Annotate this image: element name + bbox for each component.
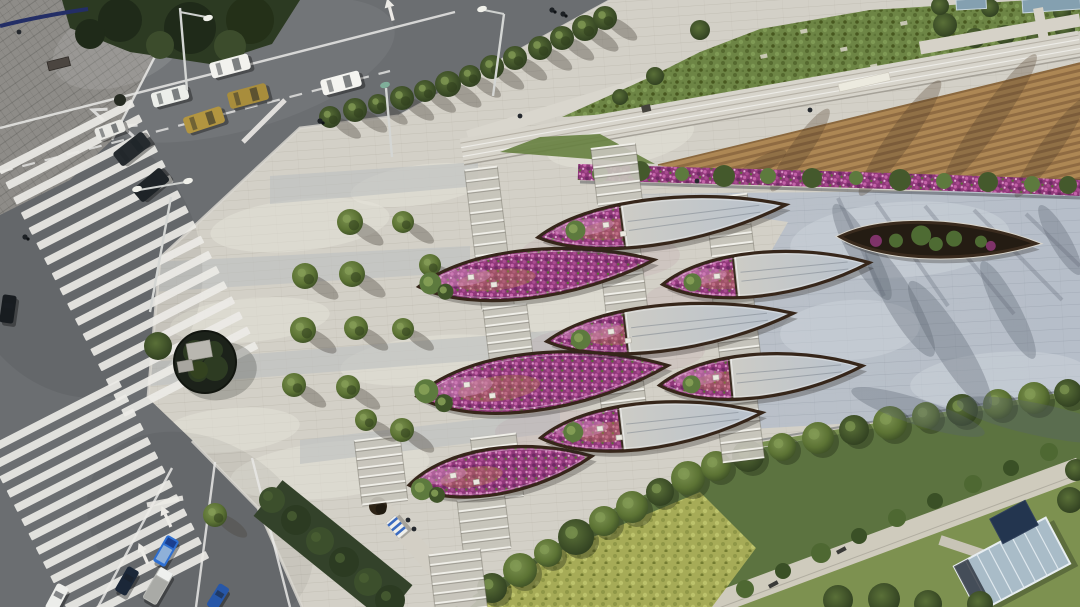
planter-box — [608, 329, 615, 335]
shrub — [888, 509, 906, 527]
aerial-photo — [0, 0, 1080, 607]
tree-clump — [401, 428, 411, 438]
hedge-tree — [306, 527, 334, 555]
tree-clump — [377, 103, 385, 111]
tree-clump — [514, 56, 524, 66]
step-flight — [457, 495, 511, 554]
tree-clump — [349, 220, 359, 230]
tree-clump — [402, 220, 411, 229]
hedge-highlight — [381, 591, 391, 601]
tree-highlight — [298, 269, 306, 277]
shrub — [1003, 460, 1019, 476]
tree-clump — [354, 108, 364, 118]
tree-highlight — [208, 508, 216, 516]
shrub — [736, 580, 754, 598]
tree-highlight — [360, 414, 367, 421]
tree-clump — [365, 418, 374, 427]
step-flight — [429, 549, 488, 607]
planter-box — [464, 382, 471, 388]
hedge-highlight — [287, 511, 297, 521]
tree-highlight — [1024, 388, 1035, 399]
pavilion-side-tree — [144, 332, 172, 360]
hedge-highlight — [359, 573, 369, 583]
tree-clump — [469, 74, 478, 83]
person — [412, 527, 417, 532]
kiosk-roof — [177, 359, 194, 372]
planter-box — [714, 273, 720, 279]
tree-clump — [401, 96, 411, 106]
planter-box — [620, 231, 627, 237]
shrub — [964, 475, 982, 493]
tree-clump — [424, 89, 433, 98]
motorbike-shadow — [564, 14, 567, 17]
tree-clump — [584, 26, 594, 36]
shrub — [927, 493, 943, 509]
planter-box — [625, 338, 632, 344]
shrub — [1040, 443, 1058, 461]
tree-highlight — [1060, 385, 1070, 395]
hedge-highlight — [335, 553, 345, 563]
dark-bush-core — [376, 504, 387, 515]
garden-tree — [933, 13, 957, 37]
planter-shrub — [849, 171, 863, 185]
tree-highlight — [324, 111, 331, 118]
planter-shrub — [1059, 176, 1077, 194]
corner-path-stub — [1038, 8, 1044, 40]
tree-clump — [329, 115, 338, 124]
planter-box — [713, 375, 719, 381]
tree-highlight — [555, 31, 563, 39]
planter-box — [491, 282, 498, 288]
tree-highlight — [540, 545, 550, 555]
tree-clump — [429, 263, 438, 272]
tree-highlight — [808, 428, 819, 439]
garden-tree — [503, 553, 537, 587]
tree-highlight — [397, 323, 404, 330]
tree-clump — [347, 385, 357, 395]
motorbike-shadow — [26, 237, 29, 240]
tree-clump — [355, 326, 365, 336]
garden-tree — [612, 89, 628, 105]
tree-highlight — [341, 380, 349, 388]
planter-box — [450, 473, 457, 479]
motorbike-shadow — [321, 121, 324, 124]
planter-box — [603, 222, 610, 228]
shrub — [851, 528, 867, 544]
garden-tree — [768, 433, 796, 461]
tree-highlight — [774, 439, 784, 449]
step-flight — [591, 143, 643, 206]
tree-highlight — [565, 526, 578, 539]
hedge-tree — [329, 547, 359, 577]
tree-highlight — [464, 70, 471, 77]
garden-tree — [690, 20, 710, 40]
planter-shrub — [802, 168, 822, 188]
hedge-tree — [259, 487, 285, 513]
garden-tree — [802, 422, 834, 454]
tree-highlight — [578, 21, 586, 29]
tree-highlight — [622, 497, 633, 508]
garden-tree — [558, 519, 594, 555]
planter-shrub — [1024, 176, 1040, 192]
planter-shrub — [760, 168, 776, 184]
person — [17, 30, 22, 35]
tree-highlight — [533, 41, 541, 49]
tree-highlight — [395, 423, 403, 431]
tree-highlight — [395, 91, 403, 99]
tree-highlight — [349, 321, 357, 329]
tree-clump — [302, 328, 312, 338]
trash-bin — [114, 94, 126, 106]
garden-tree — [616, 491, 648, 523]
planter-shrub — [675, 167, 689, 181]
tree-clump — [304, 274, 314, 284]
tree-highlight — [510, 560, 522, 572]
tree-highlight — [345, 267, 353, 275]
canopy-clump — [75, 19, 105, 49]
tree-clump — [561, 36, 571, 46]
shrub — [775, 563, 791, 579]
person — [695, 179, 700, 184]
tree-highlight — [287, 378, 295, 386]
tree-clump — [447, 82, 457, 92]
planter-shrub — [978, 172, 998, 192]
planter-box — [597, 426, 604, 432]
tree-highlight — [485, 60, 493, 68]
tree-highlight — [678, 468, 690, 480]
motorbike-shadow — [553, 10, 556, 13]
tree-clump — [214, 513, 224, 523]
garden-tree — [646, 67, 664, 85]
garden-tree — [839, 415, 869, 445]
garden-tree — [671, 461, 705, 495]
planter-box — [473, 479, 480, 485]
tree-highlight — [424, 259, 431, 266]
tree-highlight — [845, 421, 856, 432]
tree-clump — [351, 272, 361, 282]
planter-box — [468, 274, 475, 280]
tree-highlight — [595, 512, 606, 523]
tree-highlight — [372, 98, 378, 104]
tree-clump — [539, 46, 549, 56]
tree-highlight — [652, 484, 662, 494]
tree-highlight — [419, 85, 426, 92]
skylight-glass — [956, 0, 986, 10]
tree-highlight — [598, 11, 606, 19]
tree-clump — [293, 383, 303, 393]
tree-highlight — [441, 77, 449, 85]
tree-highlight — [348, 103, 356, 111]
person — [406, 518, 411, 523]
shrub — [811, 543, 831, 563]
tree-clump — [604, 16, 614, 26]
person — [518, 114, 523, 119]
canopy-clump — [146, 31, 174, 59]
hedge-highlight — [311, 532, 321, 542]
tree-highlight — [397, 216, 404, 223]
tree-highlight — [508, 51, 516, 59]
tree-highlight — [343, 215, 351, 223]
hedge-highlight — [263, 491, 273, 501]
hedge-tree — [281, 505, 311, 535]
aerial-photo-svg — [0, 0, 1080, 607]
planter-shrub — [713, 165, 735, 187]
planter-shrub — [936, 173, 952, 189]
garden-tree — [646, 478, 674, 506]
planter-box — [616, 435, 623, 441]
garden-tree — [589, 506, 619, 536]
step-flight — [354, 435, 408, 506]
tree-clump — [402, 327, 411, 336]
person — [808, 108, 813, 113]
planter-box — [489, 393, 496, 399]
garden-tree — [534, 539, 562, 567]
tree-highlight — [707, 457, 718, 468]
tree-highlight — [296, 323, 304, 331]
planter-shrub — [889, 169, 911, 191]
